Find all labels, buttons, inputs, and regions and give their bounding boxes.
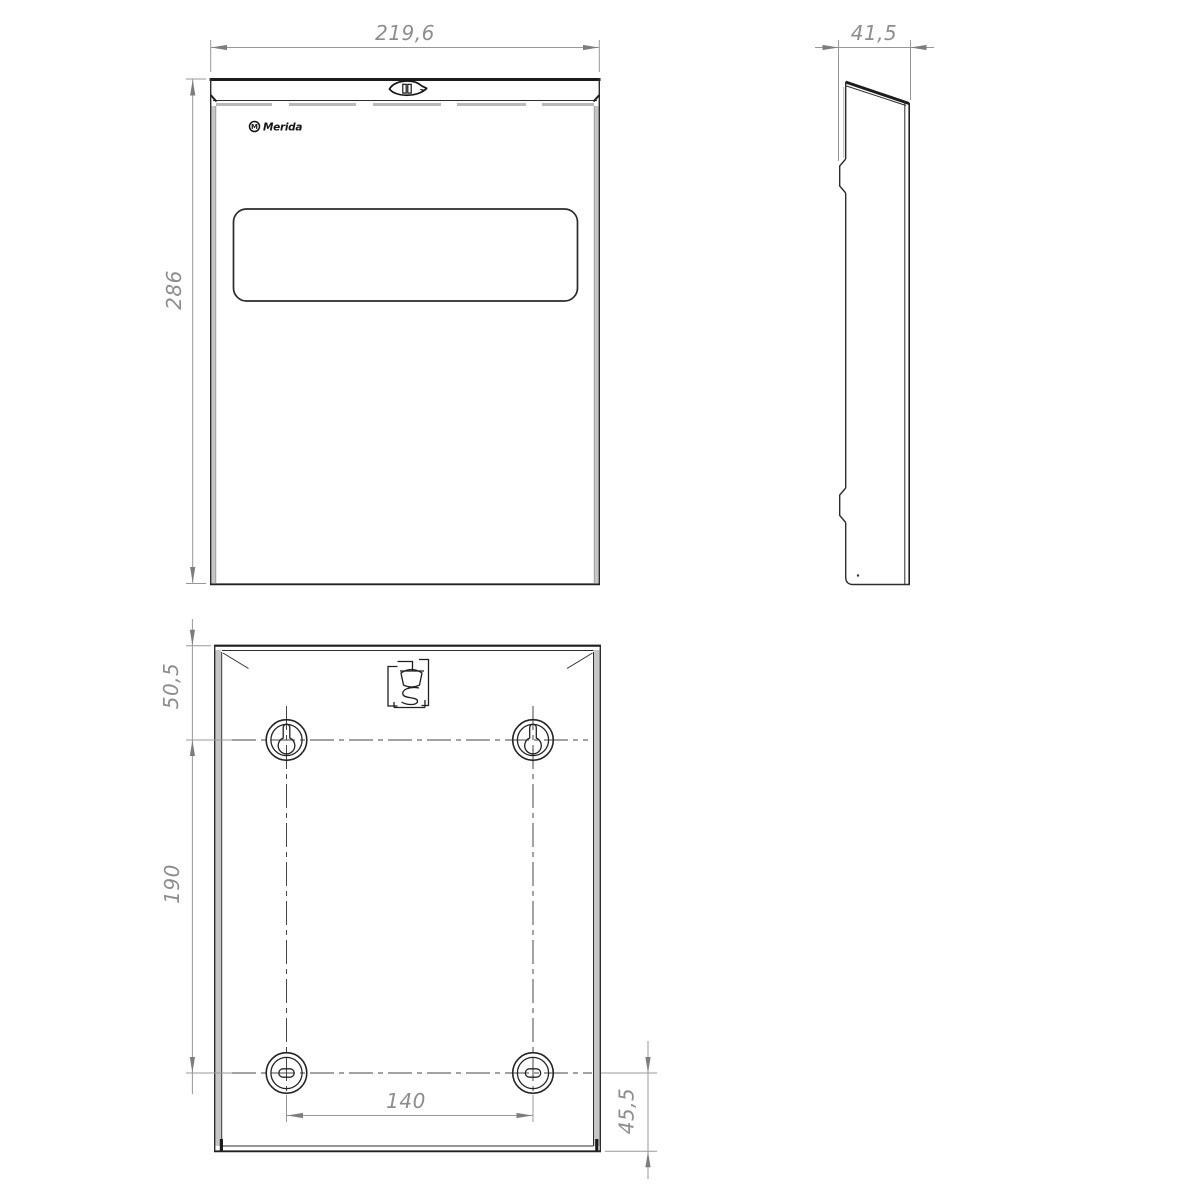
lock-mechanism-back xyxy=(388,660,429,708)
dimension-front-width: 219,6 xyxy=(211,21,600,72)
side-detail-dot xyxy=(857,574,859,576)
brand-logo-text: Merida xyxy=(263,122,302,134)
dim-front-height-label: 286 xyxy=(162,270,186,310)
corner-fold-left xyxy=(220,1139,223,1151)
dimension-front-height: 286 xyxy=(162,79,206,584)
dim-hole-top-offset-label: 50,5 xyxy=(159,663,183,710)
dim-hole-bottom-offset-label: 45,5 xyxy=(615,1088,639,1135)
centerlines xyxy=(232,706,592,1122)
brand-logo-mark: M xyxy=(251,123,258,131)
front-lock-icon xyxy=(390,81,427,95)
front-window-opening xyxy=(234,209,578,301)
corner-chamfer-right xyxy=(567,653,593,669)
dim-front-width-label: 219,6 xyxy=(375,21,435,45)
side-view xyxy=(840,82,910,585)
corner-chamfer-left xyxy=(223,653,249,669)
dimension-back-vertical-chain: 50,5 190 xyxy=(159,619,232,1094)
corner-fold-right xyxy=(595,1139,598,1151)
brand-logo: M Merida xyxy=(250,122,303,134)
dim-hole-horizontal-spacing-label: 140 xyxy=(386,1089,426,1113)
back-view xyxy=(214,645,601,1151)
mounting-tab-lower xyxy=(840,488,846,523)
dim-side-depth-label: 41,5 xyxy=(851,21,898,45)
dimension-hole-bottom-offset: 45,5 xyxy=(601,1041,657,1179)
front-view: M Merida xyxy=(210,79,601,585)
front-body xyxy=(210,101,600,584)
mounting-tab-upper xyxy=(840,159,846,193)
technical-drawing-canvas: M Merida 219,6 286 xyxy=(0,0,1200,1200)
dim-hole-vertical-spacing-label: 190 xyxy=(160,864,184,904)
back-panel-border xyxy=(214,645,601,1151)
dimension-hole-horizontal-spacing: 140 xyxy=(287,1089,534,1122)
